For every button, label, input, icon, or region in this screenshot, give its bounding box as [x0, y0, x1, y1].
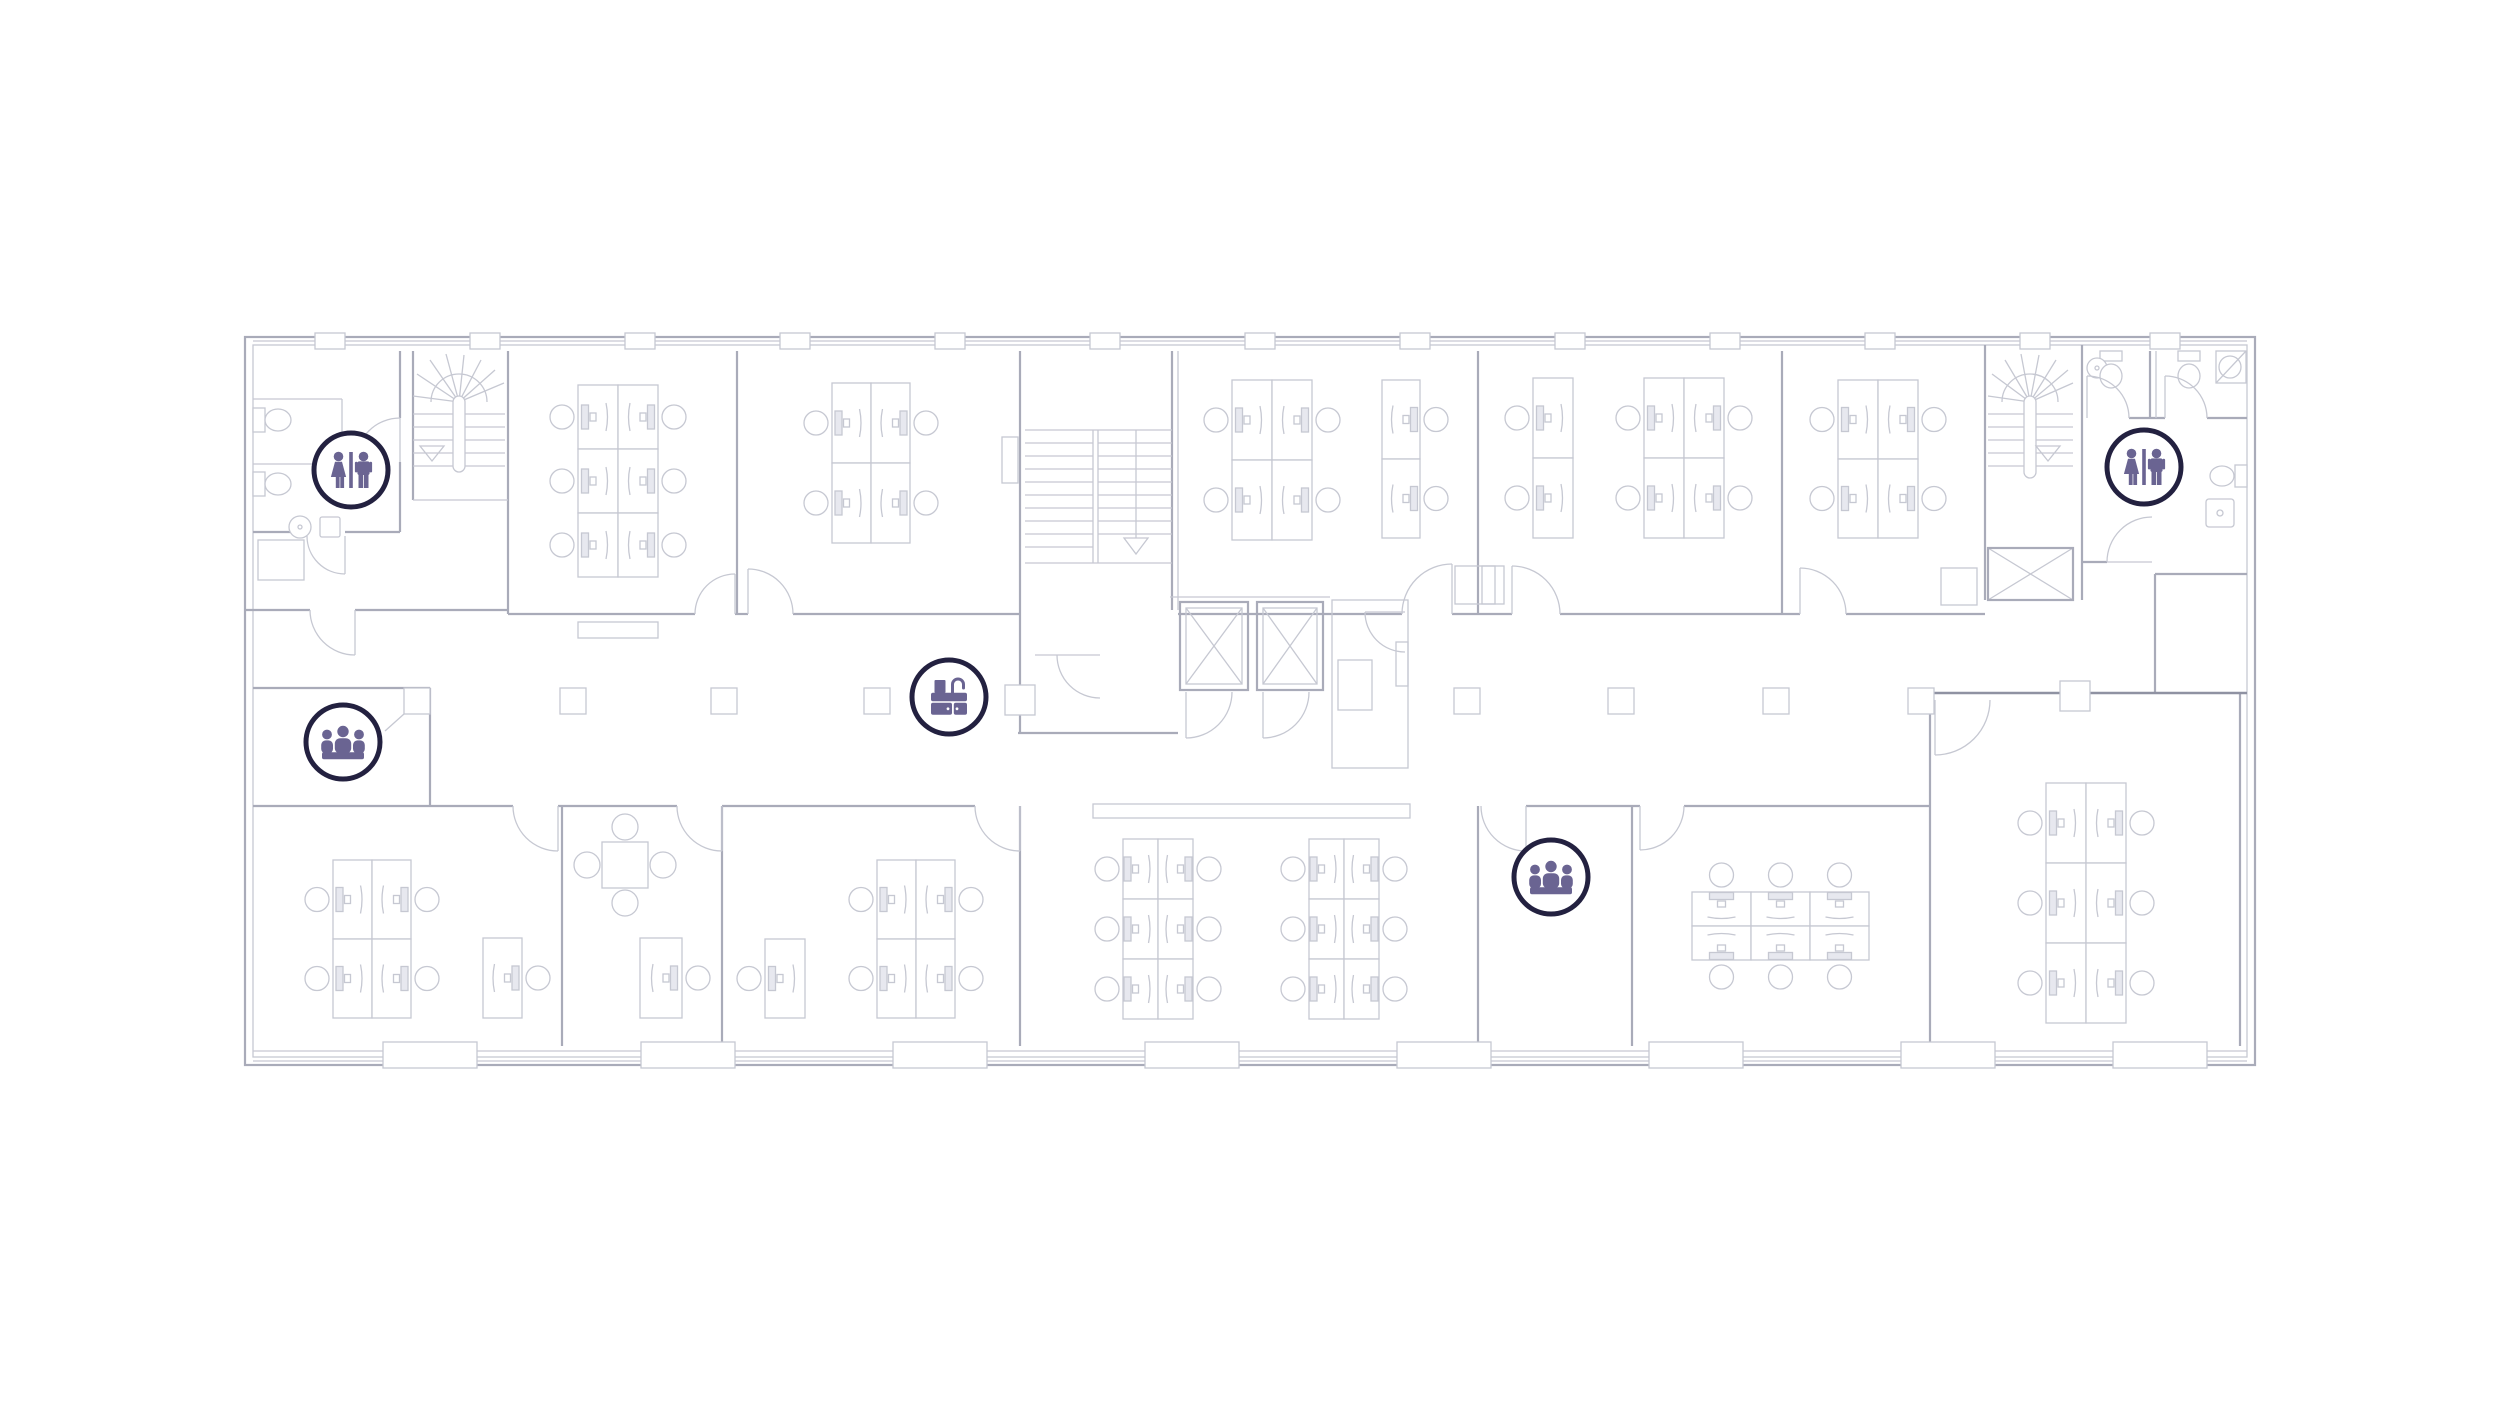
monitor-screen — [769, 967, 776, 991]
chair — [1828, 965, 1852, 989]
man-torso — [357, 461, 369, 475]
monitor-screen — [1411, 408, 1418, 432]
chair — [1616, 406, 1640, 430]
chair — [2130, 971, 2154, 995]
man-head — [359, 452, 369, 462]
chair — [526, 966, 550, 990]
window-pier — [1245, 333, 1275, 349]
restroom-badge-right[interactable] — [2107, 430, 2181, 504]
monitor-screen — [1302, 408, 1309, 432]
door-swing-arc — [748, 569, 793, 614]
woman-leg — [2129, 474, 2133, 485]
chair — [305, 967, 329, 991]
wall-line — [430, 360, 459, 402]
monitor-screen — [512, 966, 519, 990]
chair — [550, 405, 574, 429]
toilet-bowl — [2178, 364, 2200, 388]
detail-path — [385, 714, 404, 731]
monitor-screen — [945, 888, 952, 912]
chair — [612, 814, 638, 840]
window-pier — [1555, 333, 1585, 349]
monitor-screen — [1842, 487, 1849, 511]
window-pier — [1649, 1042, 1743, 1068]
person-body — [353, 740, 365, 753]
chair — [1281, 857, 1305, 881]
monitor-screen — [1236, 488, 1243, 512]
man-head — [2152, 449, 2162, 459]
fixture-rect — [711, 688, 737, 714]
door-swing-arc — [1640, 806, 1684, 850]
person-body — [1543, 873, 1559, 888]
floor-plan — [0, 0, 2500, 1407]
person-body — [1561, 875, 1573, 888]
window-pier — [625, 333, 655, 349]
chair — [1728, 406, 1752, 430]
window-pier — [1397, 1042, 1491, 1068]
fixture-rect — [1482, 566, 1504, 604]
monitor-screen — [1828, 893, 1852, 900]
fixture-rect — [1093, 804, 1410, 818]
chair — [662, 533, 686, 557]
chair — [662, 405, 686, 429]
monitor-screen — [336, 888, 343, 912]
divider-bar — [349, 452, 353, 488]
door-swing-arc — [513, 806, 558, 851]
chair — [1281, 917, 1305, 941]
person-body — [1529, 875, 1541, 888]
fixture-rect — [2178, 351, 2200, 361]
window-pier — [641, 1042, 735, 1068]
fixture-rect — [560, 688, 586, 714]
fixture-rect — [1455, 566, 1495, 604]
restroom-icon — [2124, 449, 2165, 485]
monitor-screen — [1714, 406, 1721, 430]
monitor-screen — [945, 967, 952, 991]
chair — [1424, 487, 1448, 511]
chair — [1197, 857, 1221, 881]
monitor-screen — [1236, 408, 1243, 432]
chair — [574, 852, 600, 878]
chair — [1095, 977, 1119, 1001]
window-pier — [780, 333, 810, 349]
chair — [1810, 487, 1834, 511]
woman-head — [334, 452, 344, 462]
monitor-screen — [880, 967, 887, 991]
door-swing-arc — [1800, 568, 1846, 614]
monitor-screen — [2050, 891, 2057, 915]
fixture-rect — [1454, 688, 1480, 714]
monitor-screen — [835, 491, 842, 515]
man-arm — [2162, 459, 2165, 470]
door-swing-arc — [1365, 612, 1405, 652]
chair — [1505, 486, 1529, 510]
door-swing-arc — [307, 536, 345, 574]
chair — [1810, 408, 1834, 432]
window-pier — [935, 333, 965, 349]
chair — [1204, 488, 1228, 512]
man-leg — [364, 474, 369, 488]
monitor-screen — [1908, 408, 1915, 432]
window-pier — [470, 333, 500, 349]
chair — [550, 469, 574, 493]
chair — [914, 411, 938, 435]
chair — [1316, 408, 1340, 432]
window-pier — [2150, 333, 2180, 349]
monitor-screen — [2116, 891, 2123, 915]
meeting-room-badge-left[interactable] — [306, 705, 380, 779]
fixture-rect — [2235, 465, 2247, 487]
monitor-screen — [2050, 971, 2057, 995]
person-body — [321, 740, 333, 753]
soap-box — [935, 680, 946, 693]
monitor-screen — [2050, 811, 2057, 835]
fixture-rect — [253, 408, 265, 432]
chair — [1710, 863, 1734, 887]
window-pier — [893, 1042, 987, 1068]
door-swing-arc — [975, 806, 1020, 851]
window-pier — [383, 1042, 477, 1068]
table-top — [1530, 887, 1572, 894]
chair — [1922, 487, 1946, 511]
man-arm — [2148, 459, 2151, 470]
chair — [1197, 917, 1221, 941]
chair — [1769, 965, 1793, 989]
chair — [2130, 811, 2154, 835]
person-head — [1545, 861, 1556, 872]
toilet-bowl — [265, 473, 291, 495]
monitor-screen — [1371, 977, 1378, 1001]
window-pier — [1145, 1042, 1239, 1068]
cabinet-handle — [956, 707, 959, 710]
fixture-rect — [253, 472, 265, 496]
floor-plan-canvas — [0, 0, 2500, 1407]
door-swing-arc — [1481, 806, 1526, 851]
monitor-screen — [2116, 811, 2123, 835]
fixture-rect — [453, 396, 465, 472]
monitor-screen — [835, 411, 842, 435]
fixture-rect — [1908, 688, 1934, 714]
chair — [849, 967, 873, 991]
monitor-screen — [336, 967, 343, 991]
monitor-screen — [1908, 487, 1915, 511]
table-top — [322, 752, 364, 759]
meeting-icon — [321, 726, 365, 759]
chair — [1710, 965, 1734, 989]
cabinet-handle — [947, 707, 950, 710]
fixture-rect — [2206, 499, 2234, 527]
monitor-screen — [1769, 893, 1793, 900]
window-pier — [1090, 333, 1120, 349]
monitor-screen — [582, 533, 589, 557]
monitor-screen — [582, 405, 589, 429]
fixture-rect — [258, 540, 304, 580]
monitor-screen — [2116, 971, 2123, 995]
fixture-rect — [1941, 568, 1977, 605]
chair — [1828, 863, 1852, 887]
man-torso — [2150, 458, 2162, 472]
woman-leg — [336, 477, 340, 488]
door-swing-arc — [1057, 655, 1100, 698]
chair — [2018, 971, 2042, 995]
man-leg — [359, 474, 364, 488]
monitor-screen — [1710, 893, 1734, 900]
chair — [1095, 857, 1119, 881]
monitor-screen — [1842, 408, 1849, 432]
woman-leg — [2133, 474, 2137, 485]
chair — [1281, 977, 1305, 1001]
man-arm — [369, 462, 372, 473]
chair — [1383, 857, 1407, 881]
monitor-screen — [1310, 857, 1317, 881]
monitor-screen — [1185, 857, 1192, 881]
monitor-screen — [880, 888, 887, 912]
chair — [1616, 486, 1640, 510]
window-pier — [1400, 333, 1430, 349]
counter-top — [931, 693, 967, 701]
monitor-screen — [1537, 406, 1544, 430]
fixture-rect — [1608, 688, 1634, 714]
woman-leg — [340, 477, 344, 488]
fixture-rect — [864, 688, 890, 714]
person-head — [322, 730, 332, 740]
fixture-rect — [1763, 688, 1789, 714]
monitor-screen — [1185, 977, 1192, 1001]
window-pier — [315, 333, 345, 349]
detail-path — [1124, 538, 1148, 554]
door-swing-arc — [1402, 564, 1452, 614]
monitor-screen — [1371, 917, 1378, 941]
toilet-bowl — [2100, 364, 2122, 388]
window-pier — [1901, 1042, 1995, 1068]
restroom-icon — [331, 452, 372, 488]
chair — [1769, 863, 1793, 887]
person-head — [354, 730, 364, 740]
door-swing-arc — [2107, 517, 2152, 562]
monitor-screen — [1714, 486, 1721, 510]
monitor-screen — [1310, 917, 1317, 941]
monitor-screen — [900, 491, 907, 515]
monitor-screen — [1411, 487, 1418, 511]
monitor-screen — [1648, 486, 1655, 510]
chair — [1095, 917, 1119, 941]
fixture-rect — [1396, 642, 1408, 686]
chair — [1197, 977, 1221, 1001]
monitor-screen — [1302, 488, 1309, 512]
man-arm — [355, 462, 358, 473]
meeting-icon — [1529, 861, 1573, 894]
monitor-screen — [1769, 953, 1793, 960]
chair — [305, 888, 329, 912]
chair — [959, 888, 983, 912]
monitor-screen — [1124, 977, 1131, 1001]
chair — [849, 888, 873, 912]
monitor-screen — [401, 888, 408, 912]
monitor-screen — [1185, 917, 1192, 941]
window-pier — [2020, 333, 2050, 349]
person-head — [1562, 865, 1572, 875]
chair — [2130, 891, 2154, 915]
chair — [1204, 408, 1228, 432]
chair — [2018, 891, 2042, 915]
monitor-screen — [648, 469, 655, 493]
fixture-rect — [2060, 681, 2090, 711]
chair — [415, 888, 439, 912]
monitor-screen — [1648, 406, 1655, 430]
fixture-rect — [2024, 396, 2036, 478]
window-pier — [1710, 333, 1740, 349]
fixture-rect — [1338, 660, 1372, 710]
door-swing-arc — [1186, 692, 1232, 738]
chair — [1316, 488, 1340, 512]
monitor-screen — [401, 967, 408, 991]
monitor-screen — [1710, 953, 1734, 960]
chair — [662, 469, 686, 493]
man-leg — [2152, 471, 2157, 485]
chair — [914, 491, 938, 515]
monitor-screen — [1124, 857, 1131, 881]
fixture-rect — [1005, 685, 1035, 715]
chair — [550, 533, 574, 557]
person-head — [1530, 865, 1540, 875]
person-head — [337, 726, 348, 737]
monitor-screen — [1537, 486, 1544, 510]
monitor-screen — [1310, 977, 1317, 1001]
chair — [1505, 406, 1529, 430]
man-leg — [2157, 471, 2162, 485]
fixture-rect — [1002, 437, 1018, 483]
door-swing-arc — [310, 610, 355, 655]
chair — [415, 967, 439, 991]
window-pier — [1865, 333, 1895, 349]
monitor-screen — [648, 533, 655, 557]
fixture-rect — [578, 622, 658, 638]
chair — [1922, 408, 1946, 432]
toilet-bowl — [265, 409, 291, 431]
chair — [686, 966, 710, 990]
fixture-circle — [289, 516, 311, 538]
chair — [1383, 917, 1407, 941]
door-swing-arc — [1512, 566, 1560, 614]
chair — [1424, 408, 1448, 432]
chair — [804, 491, 828, 515]
chair — [650, 852, 676, 878]
woman-head — [2127, 449, 2137, 459]
door-swing-arc — [695, 574, 735, 614]
monitor-screen — [671, 966, 678, 990]
person-body — [335, 738, 351, 753]
fixture-rect — [320, 517, 340, 537]
monitor-screen — [582, 469, 589, 493]
meeting-table — [602, 842, 648, 888]
chair — [1728, 486, 1752, 510]
door-swing-arc — [677, 806, 722, 851]
chair — [737, 967, 761, 991]
chair — [804, 411, 828, 435]
chair — [1383, 977, 1407, 1001]
monitor-screen — [900, 411, 907, 435]
window-pier — [2113, 1042, 2207, 1068]
chair — [959, 967, 983, 991]
meeting-room-badge-center[interactable] — [1514, 840, 1588, 914]
toilet-bowl — [2210, 466, 2234, 486]
fixture-rect — [404, 688, 430, 714]
monitor-screen — [648, 405, 655, 429]
divider-bar — [2142, 449, 2146, 485]
monitor-screen — [1828, 953, 1852, 960]
kitchen-badge[interactable] — [912, 660, 986, 734]
restroom-badge-left[interactable] — [314, 433, 388, 507]
chair — [612, 890, 638, 916]
monitor-screen — [1371, 857, 1378, 881]
door-swing-arc — [1263, 692, 1309, 738]
monitor-screen — [1124, 917, 1131, 941]
door-swing-arc — [1935, 700, 1990, 755]
chair — [2018, 811, 2042, 835]
